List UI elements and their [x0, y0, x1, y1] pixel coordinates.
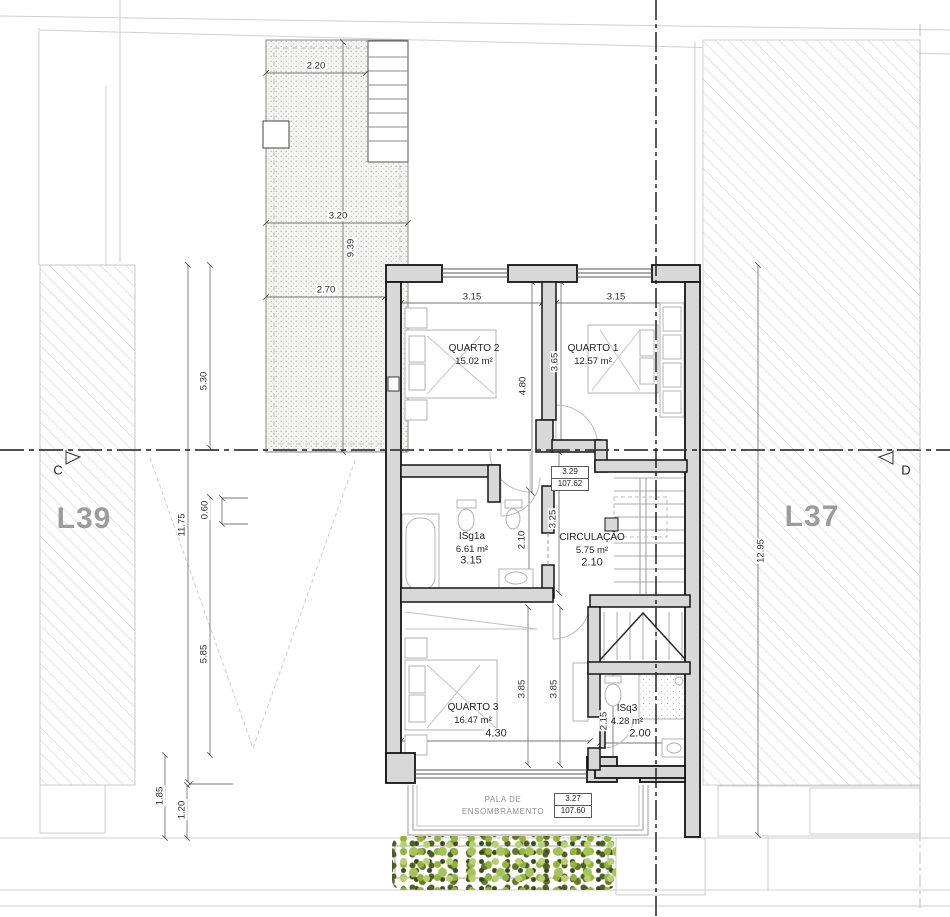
dim-quarto3-height-b: 3.85 — [549, 679, 559, 700]
stair-newel — [605, 518, 618, 531]
floor-plan-drawing — [0, 0, 950, 917]
dim-left-1-85: 1.85 — [155, 786, 165, 807]
dim-hall-height: 3.25 — [548, 509, 558, 530]
window-quarto1 — [577, 269, 652, 277]
yard-slope-lines — [150, 458, 356, 748]
dim-terrace-2-70: 2.70 — [316, 285, 337, 295]
room-label-circulacao: CIRCULAÇÃO5.75 m² — [559, 532, 625, 556]
section-marker-d: D — [901, 463, 910, 478]
dim-left-5-30: 5.30 — [199, 371, 209, 392]
dim-terrace-3-20: 3.20 — [328, 211, 349, 221]
dim-bath-height: 2.10 — [517, 530, 527, 551]
dim-terrace-2-20: 2.20 — [306, 61, 327, 71]
pala-label: PALA DE ENSOMBRAMENTO — [462, 794, 544, 818]
door-quarto3 — [553, 602, 590, 639]
dim-quarto3-width: 4.30 — [484, 729, 507, 740]
dim-terrace-9-39: 9.39 — [346, 238, 356, 259]
desk-quarto3 — [573, 663, 588, 721]
room-label-quarto3: QUARTO 316.47 m² — [448, 702, 499, 726]
dim-circulacao-width: 2.10 — [580, 558, 603, 569]
room-label-quarto2: QUARTO 215.02 m² — [449, 343, 500, 367]
room-label-quarto1: QUARTO 112.57 m² — [568, 343, 619, 367]
dim-right-12-95: 12.95 — [756, 538, 766, 564]
lot-label-l39: L39 — [57, 502, 112, 536]
dim-isq3-height: 2.15 — [599, 711, 609, 732]
lot-label-l37: L37 — [785, 500, 840, 534]
level-marker-upper: 3.29 107.62 — [551, 466, 589, 491]
dim-left-5-85: 5.85 — [199, 644, 209, 665]
dim-quarto2-height: 4.80 — [518, 376, 528, 397]
window-quarto3 — [415, 770, 587, 778]
bidet — [505, 500, 522, 508]
dim-quarto3-height-a: 3.85 — [517, 679, 527, 700]
hedge-vegetation — [392, 836, 616, 890]
window-left-wall — [388, 377, 399, 391]
room-label-isq3: ISq34.28 m² — [611, 703, 643, 727]
toilet-isq3 — [605, 676, 621, 683]
dim-quarto1-height: 3.65 — [550, 352, 560, 373]
dim-quarto1-width: 3.15 — [606, 292, 627, 302]
closet-quarto3 — [405, 612, 537, 629]
window-quarto2 — [442, 269, 508, 277]
terrace-hatch-box — [263, 121, 289, 148]
toilet — [457, 500, 476, 508]
dim-isq3-width: 2.00 — [628, 729, 651, 740]
staircase — [600, 478, 686, 660]
section-marker-c: C — [53, 463, 62, 478]
floor-plan-canvas: L39 L37 C D QUARTO 215.02 m² QUARTO 112.… — [0, 0, 950, 917]
door-isg1a — [501, 477, 540, 516]
dim-isg1a-width: 3.15 — [459, 556, 482, 567]
dim-left-11-75: 11.75 — [177, 512, 187, 537]
dim-quarto2-width: 3.15 — [462, 292, 483, 302]
dim-left-1-20: 1.20 — [177, 800, 187, 821]
dim-left-0-60: 0.60 — [200, 500, 210, 521]
hatch-right-lot — [703, 40, 920, 785]
room-label-isg1a: ISg1a6.61 m² — [456, 531, 488, 555]
level-marker-lower: 3.27 107.60 — [554, 793, 592, 818]
